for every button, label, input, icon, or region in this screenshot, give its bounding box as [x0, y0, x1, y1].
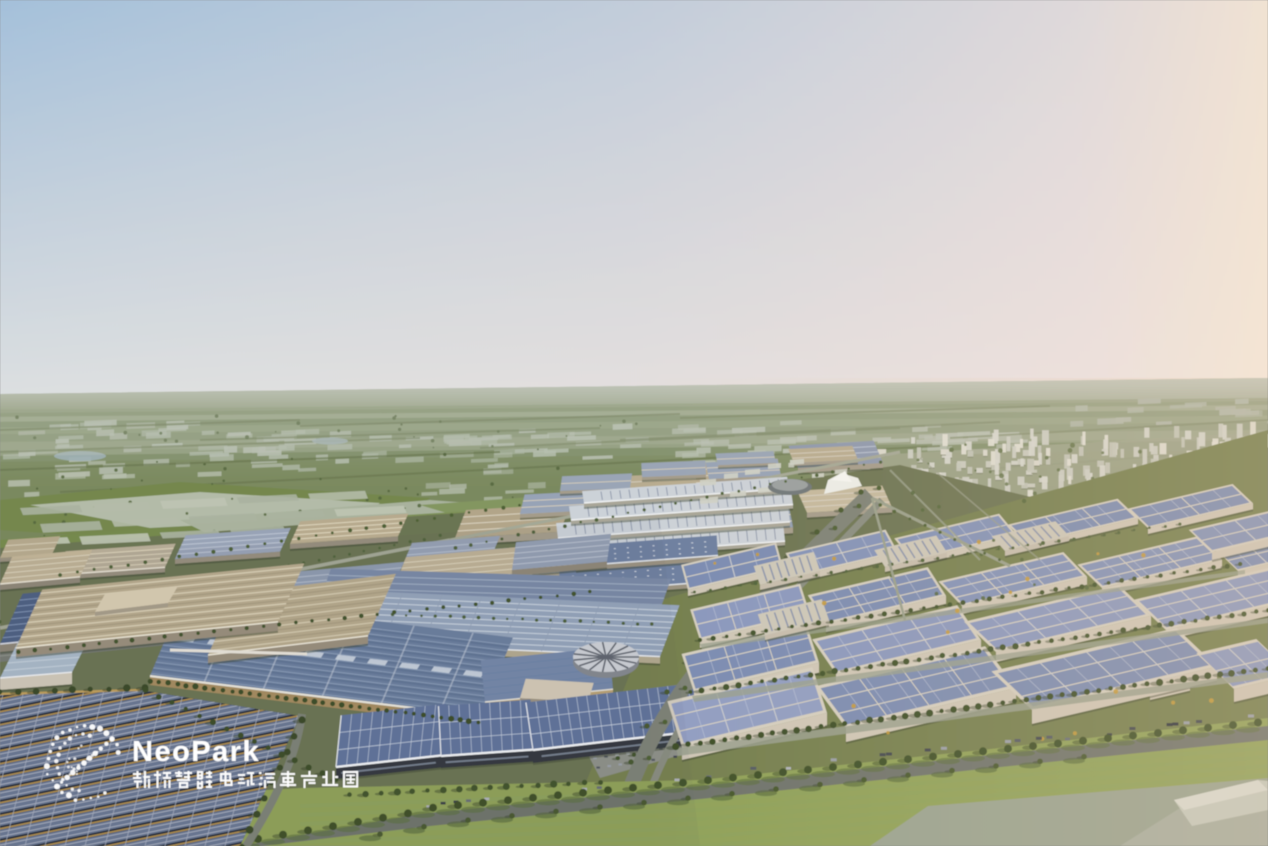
svg-text:NeoPark: NeoPark [132, 736, 260, 768]
